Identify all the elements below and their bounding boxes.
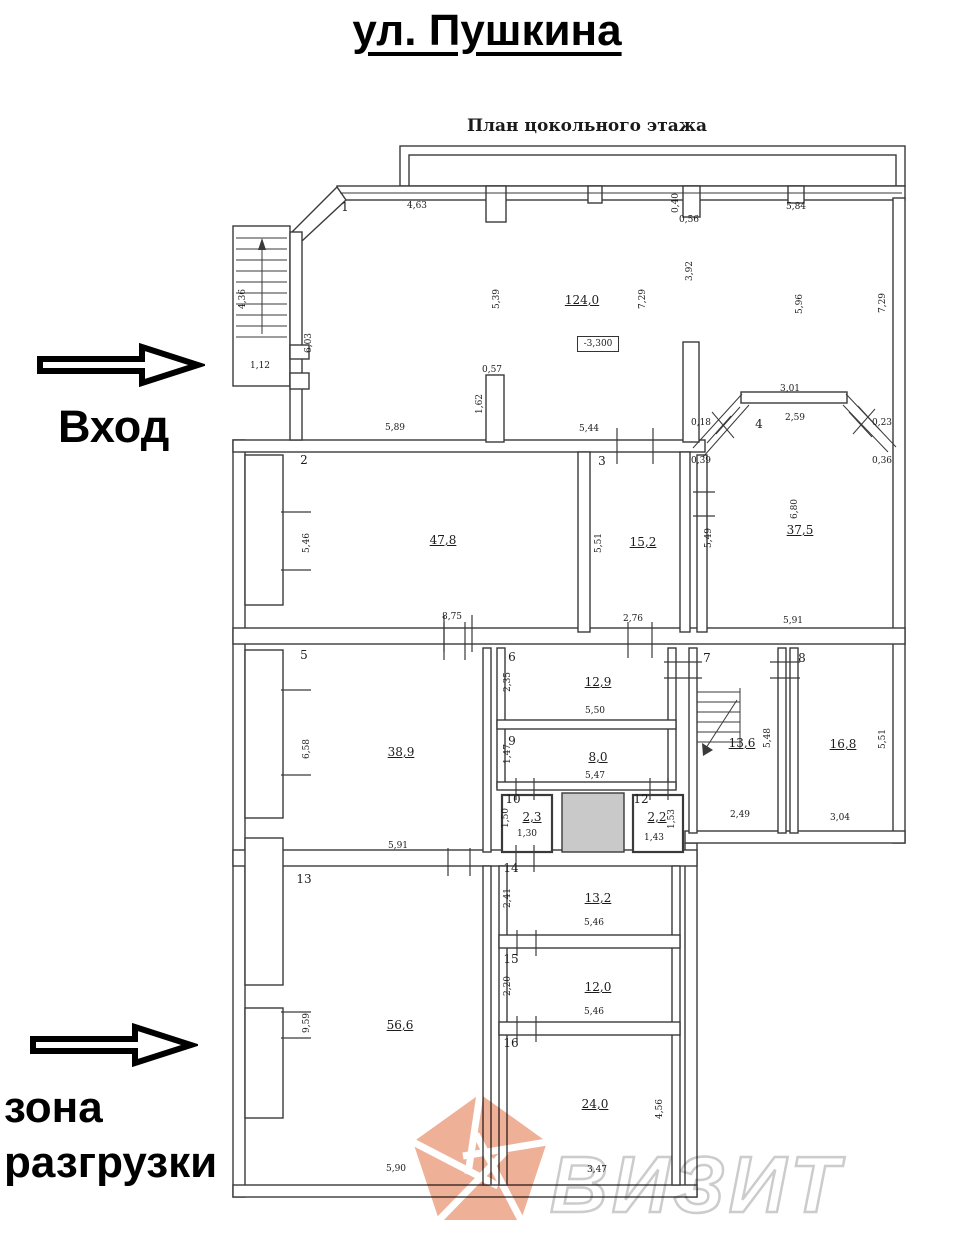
stairs-room-7	[697, 688, 740, 756]
entrance-label: Вход	[58, 401, 169, 453]
entrance-arrow-icon	[35, 342, 205, 388]
door-ticks	[281, 428, 800, 1042]
unloading-zone-line2: разгрузки	[4, 1135, 217, 1190]
page: ул. Пушкина План цокольного этажа	[0, 0, 974, 1254]
unloading-zone-label: зона разгрузки	[4, 1080, 217, 1191]
elevation-label: -3,300	[577, 336, 619, 352]
unloading-arrow-icon	[28, 1022, 198, 1068]
unloading-zone-line1: зона	[4, 1080, 217, 1135]
shaded-shaft	[562, 793, 624, 852]
